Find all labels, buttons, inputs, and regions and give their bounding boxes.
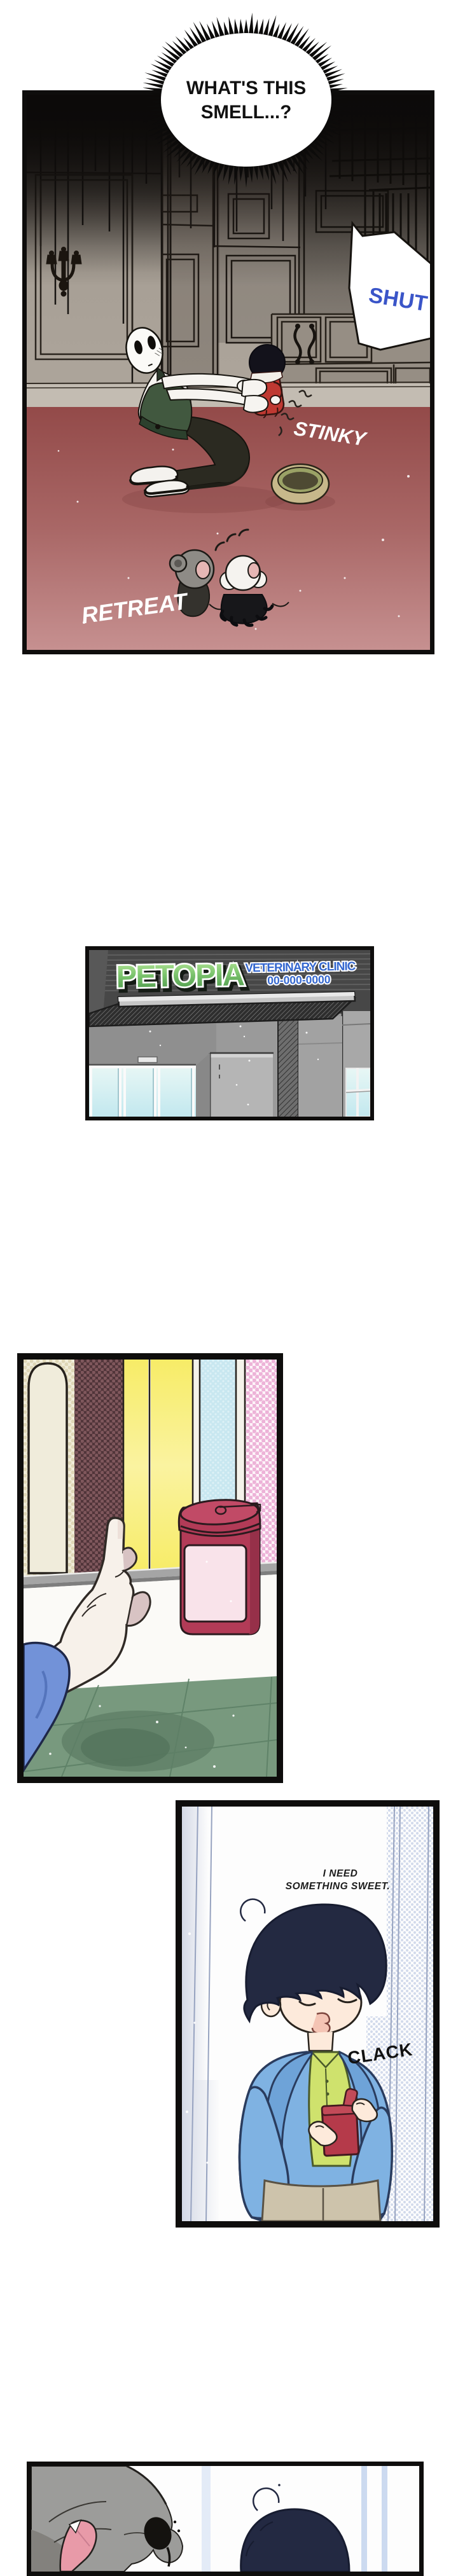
svg-text:PETOPIA: PETOPIA [116,958,245,995]
svg-text:SOMETHING SWEET.: SOMETHING SWEET. [286,1881,390,1892]
svg-text:SMELL...?: SMELL...? [201,102,292,123]
svg-text:I NEED: I NEED [323,1868,358,1879]
svg-text:WHAT'S THIS: WHAT'S THIS [186,78,306,99]
svg-text:00-000-0000: 00-000-0000 [267,973,331,987]
svg-text:VETERINARY CLINIC: VETERINARY CLINIC [245,960,356,975]
